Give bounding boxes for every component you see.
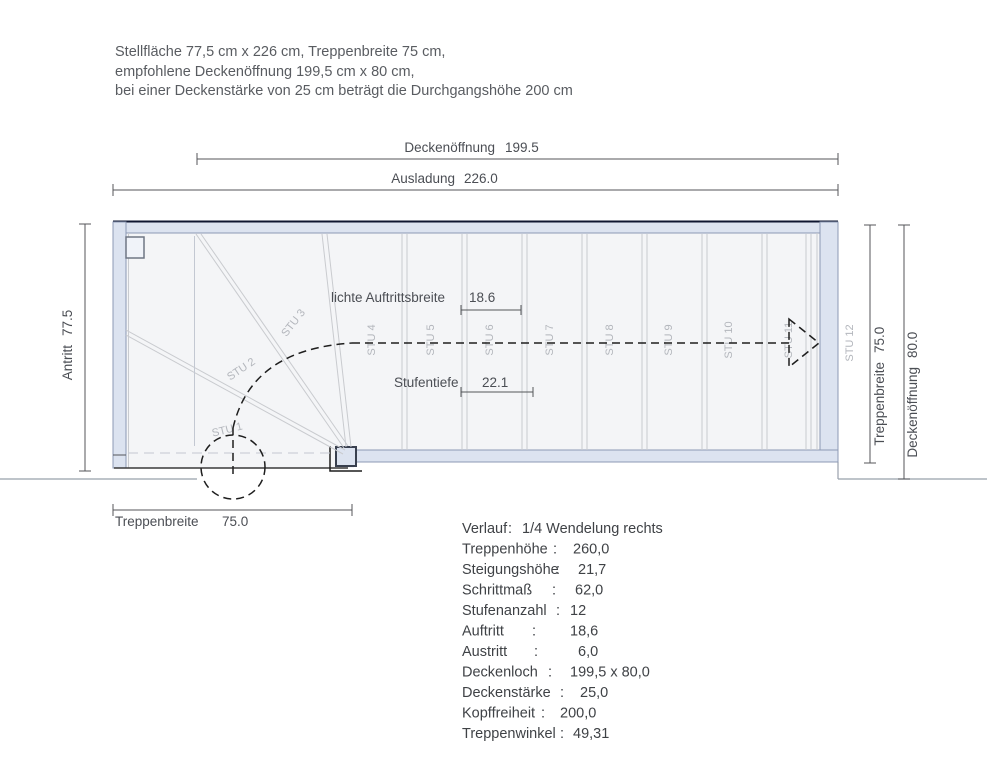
right-wall <box>820 222 838 462</box>
dim-value: 226.0 <box>464 171 498 186</box>
step-label: STU 9 <box>663 324 675 355</box>
step-label: STU 6 <box>484 324 496 355</box>
spec-row: Verlauf:1/4 Wendelung rechts <box>462 521 663 537</box>
dim-value: 75.0 <box>872 327 887 353</box>
dim-value: 199.5 <box>505 140 539 155</box>
spec-row: Auftritt:18,6 <box>462 624 598 640</box>
spec-row: Austritt:6,0 <box>462 644 598 660</box>
header-text: Stellfläche 77,5 cm x 226 cm, Treppenbre… <box>115 44 573 99</box>
dim-value: 77.5 <box>60 310 75 336</box>
dim-ausladung: Ausladung 226.0 <box>113 171 838 196</box>
top-wall <box>113 222 838 233</box>
left-wall <box>113 222 126 468</box>
dim-value: 80.0 <box>905 332 920 358</box>
step-label: STU 10 <box>723 321 735 358</box>
dim-value: 18.6 <box>469 290 495 305</box>
dim-label: Treppenbreite <box>115 514 199 529</box>
dim-label: Treppenbreite <box>872 362 887 446</box>
header-line-1: Stellfläche 77,5 cm x 226 cm, Treppenbre… <box>115 44 445 60</box>
spec-row: Treppenwinkel:49,31 <box>462 726 609 742</box>
step-label: STU 12 <box>844 324 856 361</box>
dim-label: Antritt <box>60 345 75 381</box>
dim-treppenbreite-right: Treppenbreite 75.0 <box>864 225 887 463</box>
dim-label: Deckenöffnung <box>404 140 495 155</box>
dim-deckenoeffnung-right: Deckenöffnung 80.0 <box>898 225 920 479</box>
step-label: STU 5 <box>425 324 437 355</box>
dim-deckenoeffnung-top: Deckenöffnung 199.5 <box>197 140 838 165</box>
header-line-2: empfohlene Deckenöffnung 199,5 cm x 80 c… <box>115 64 415 80</box>
step-label: STU 7 <box>544 324 556 355</box>
dim-value: 75.0 <box>222 514 248 529</box>
step-label: STU 4 <box>366 324 378 355</box>
spec-block: Verlauf:1/4 Wendelung rechts Treppenhöhe… <box>462 521 663 742</box>
stair-plan-svg: Stellfläche 77,5 cm x 226 cm, Treppenbre… <box>0 0 987 762</box>
top-left-post-detail <box>126 237 144 258</box>
dim-label: Deckenöffnung <box>905 367 920 458</box>
bottom-wall <box>348 450 838 462</box>
header-line-3: bei einer Deckenstärke von 25 cm beträgt… <box>115 83 573 99</box>
dim-label: Stufentiefe <box>394 375 459 390</box>
newel-post <box>336 447 356 466</box>
spec-row: Stufenanzahl:12 <box>462 603 586 619</box>
spec-row: Deckenstärke:25,0 <box>462 685 608 701</box>
spec-row: Deckenloch:199,5 x 80,0 <box>462 665 650 681</box>
spec-row: Kopffreiheit:200,0 <box>462 706 596 722</box>
dim-value: 22.1 <box>482 375 508 390</box>
spec-row: Treppenhöhe:260,0 <box>462 542 609 558</box>
stair-plan-page: Stellfläche 77,5 cm x 226 cm, Treppenbre… <box>0 0 987 762</box>
dim-label: lichte Auftrittsbreite <box>331 290 445 305</box>
spec-row: Schrittmaß:62,0 <box>462 583 603 599</box>
step-label: STU 8 <box>604 324 616 355</box>
dim-label: Ausladung <box>391 171 455 186</box>
dim-antritt: Antritt 77.5 <box>60 224 91 471</box>
dim-treppenbreite-bottom: Treppenbreite 75.0 <box>113 504 352 529</box>
spec-row: Steigungshöhe:21,7 <box>462 562 606 578</box>
